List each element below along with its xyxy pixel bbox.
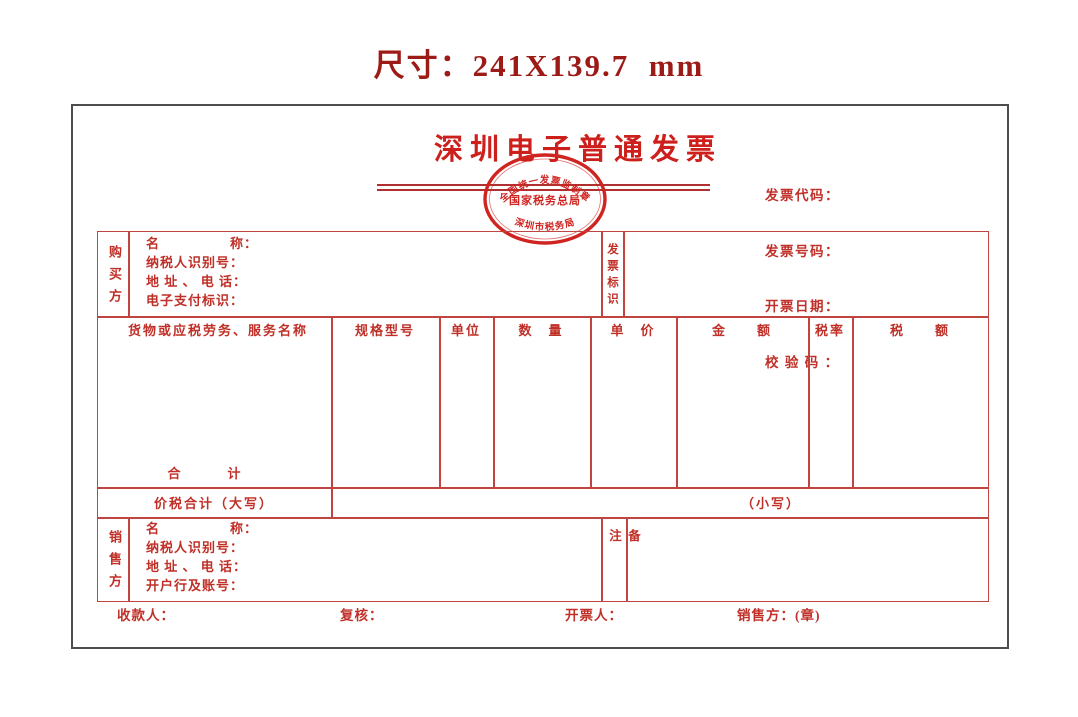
seller-side-label: 销售方 [105, 530, 124, 596]
signature-row: 收款人： 复核： 开票人： 销售方：(章) [73, 604, 1007, 624]
grid-line [590, 316, 592, 487]
grid-line [601, 232, 603, 316]
invoice-mark-label: 发票标识 [604, 243, 620, 309]
payee-label: 收款人： [117, 604, 175, 624]
remark-label: 备注 [605, 529, 643, 601]
col-header-spec-model: 规格型号 [355, 320, 415, 339]
invoice-border-box: 深圳电子普通发票 全国统一发票监制章 国家税务总局 深圳市税务局 发票代码： 发… [71, 104, 1009, 649]
col-header-goods-name: 货物或应税劳务、服务名称 [128, 320, 308, 339]
grid-line [676, 316, 678, 487]
grid-line [331, 316, 333, 487]
seller-address-phone-field-label: 地 址 、 电 话： [146, 557, 247, 576]
col-header-unit-price: 单 价 [610, 320, 655, 339]
grid-line [808, 316, 810, 487]
grid-line [852, 316, 854, 487]
col-header-tax-rate: 税率 [815, 320, 845, 339]
reviewer-label: 复核： [340, 604, 384, 624]
buyer-taxid-field-label: 纳税人识别号： [146, 253, 244, 272]
col-header-quantity: 数 量 [518, 320, 563, 339]
items-total-label: 合 计 [167, 463, 242, 482]
grid-line [601, 517, 603, 601]
stamp-middle-text: 国家税务总局 [509, 193, 581, 207]
col-header-amount: 金 额 [712, 320, 772, 339]
col-header-unit: 单位 [451, 320, 481, 339]
total-in-figures-label: （小写） [741, 493, 801, 512]
grid-line [623, 232, 625, 316]
seller-bank-account-field-label: 开户行及账号： [146, 576, 244, 595]
seller-taxid-field-label: 纳税人识别号： [146, 538, 244, 557]
invoice-table: 购买方 名 称： 纳税人识别号： 地 址 、 电 话： 电子支付标识： 发票标识… [97, 231, 989, 602]
grid-line [493, 316, 495, 487]
grid-line [98, 487, 988, 489]
size-heading: 尺寸：241X139.7 mm [0, 40, 1078, 85]
invoice-template-sheet: 尺寸：241X139.7 mm 深圳电子普通发票 全国统一发票监制章 国家税务总… [0, 0, 1078, 717]
buyer-epay-id-field-label: 电子支付标识： [146, 291, 244, 310]
grid-line [331, 487, 333, 517]
grid-line [128, 517, 130, 601]
buyer-address-phone-field-label: 地 址 、 电 话： [146, 272, 247, 291]
invoice-code-label: 发票代码： [765, 187, 840, 206]
drawer-label: 开票人： [565, 604, 623, 624]
grid-line [128, 232, 130, 316]
seller-name-field-label: 名 称： [146, 519, 258, 538]
total-in-words-label: 价税合计（大写） [154, 493, 274, 512]
buyer-name-field-label: 名 称： [146, 234, 258, 253]
grid-line [439, 316, 441, 487]
col-header-tax-amount: 税 额 [890, 320, 950, 339]
seller-seal-label: 销售方：(章) [737, 604, 821, 624]
buyer-side-label: 购买方 [105, 245, 124, 311]
grid-line [98, 316, 988, 318]
